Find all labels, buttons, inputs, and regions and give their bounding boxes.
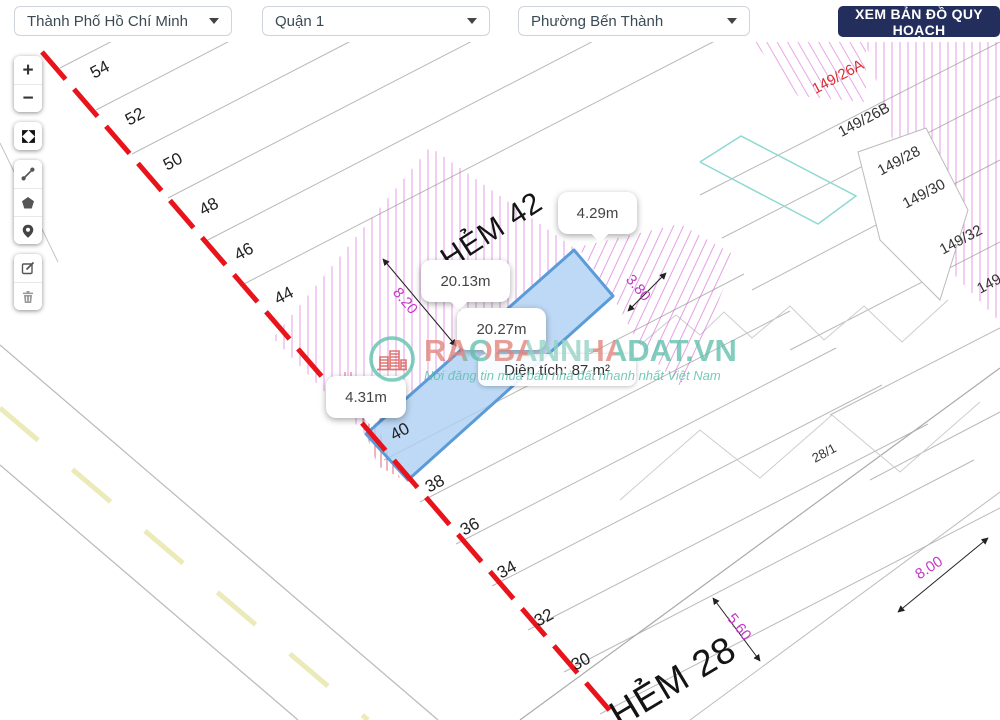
city-select[interactable]: Thành Phố Hồ Chí Minh [14,6,232,36]
edit-button[interactable] [14,254,42,282]
measurement-tooltip: 4.29m [558,192,637,234]
ward-select[interactable]: Phường Bến Thành [518,6,750,36]
measurement-tooltip: 20.13m [421,260,510,302]
top-bar: Thành Phố Hồ Chí Minh Quận 1 Phường Bến … [0,0,1000,42]
city-select-value: Thành Phố Hồ Chí Minh [27,13,188,30]
district-select-value: Quận 1 [275,13,324,30]
district-select[interactable]: Quận 1 [262,6,490,36]
measurement-tooltip: 4.31m [326,376,406,418]
measure-distance-button[interactable] [14,160,42,188]
measurement-tooltip: 20.27m [457,308,546,350]
tooltip-pointer [481,348,501,359]
fullscreen-button[interactable] [14,122,42,150]
marker-icon [21,224,35,238]
measurement-value: 4.29m [577,205,619,222]
measure-distance-icon [21,167,35,181]
draw-polygon-icon [21,196,35,210]
tooltip-pointer [362,416,382,427]
edit-icon [21,261,35,275]
map-viewer: HẺM 42 HẺM 28 54 52 50 48 46 44 40 38 36… [0,0,1000,720]
draw-polygon-button[interactable] [14,188,42,216]
area-label: Diện tích: 87 m² [478,354,636,386]
map-toolbar: + − [14,56,42,320]
trash-icon [21,290,35,304]
delete-button[interactable] [14,282,42,310]
chevron-down-icon [727,18,737,24]
ward-select-value: Phường Bến Thành [531,13,663,30]
zoom-in-button[interactable]: + [14,56,42,84]
view-planning-map-button[interactable]: XEM BẢN ĐỒ QUY HOẠCH [838,6,1000,37]
measurement-value: 20.13m [440,273,490,290]
plus-icon: + [22,61,33,80]
measurement-value: 4.31m [345,389,387,406]
tooltip-pointer [590,232,610,243]
chevron-down-icon [467,18,477,24]
fullscreen-icon [21,129,36,144]
marker-button[interactable] [14,216,42,244]
chevron-down-icon [209,18,219,24]
measurement-value: 20.27m [476,321,526,338]
zoom-out-button[interactable]: − [14,84,42,112]
minus-icon: − [22,89,33,108]
